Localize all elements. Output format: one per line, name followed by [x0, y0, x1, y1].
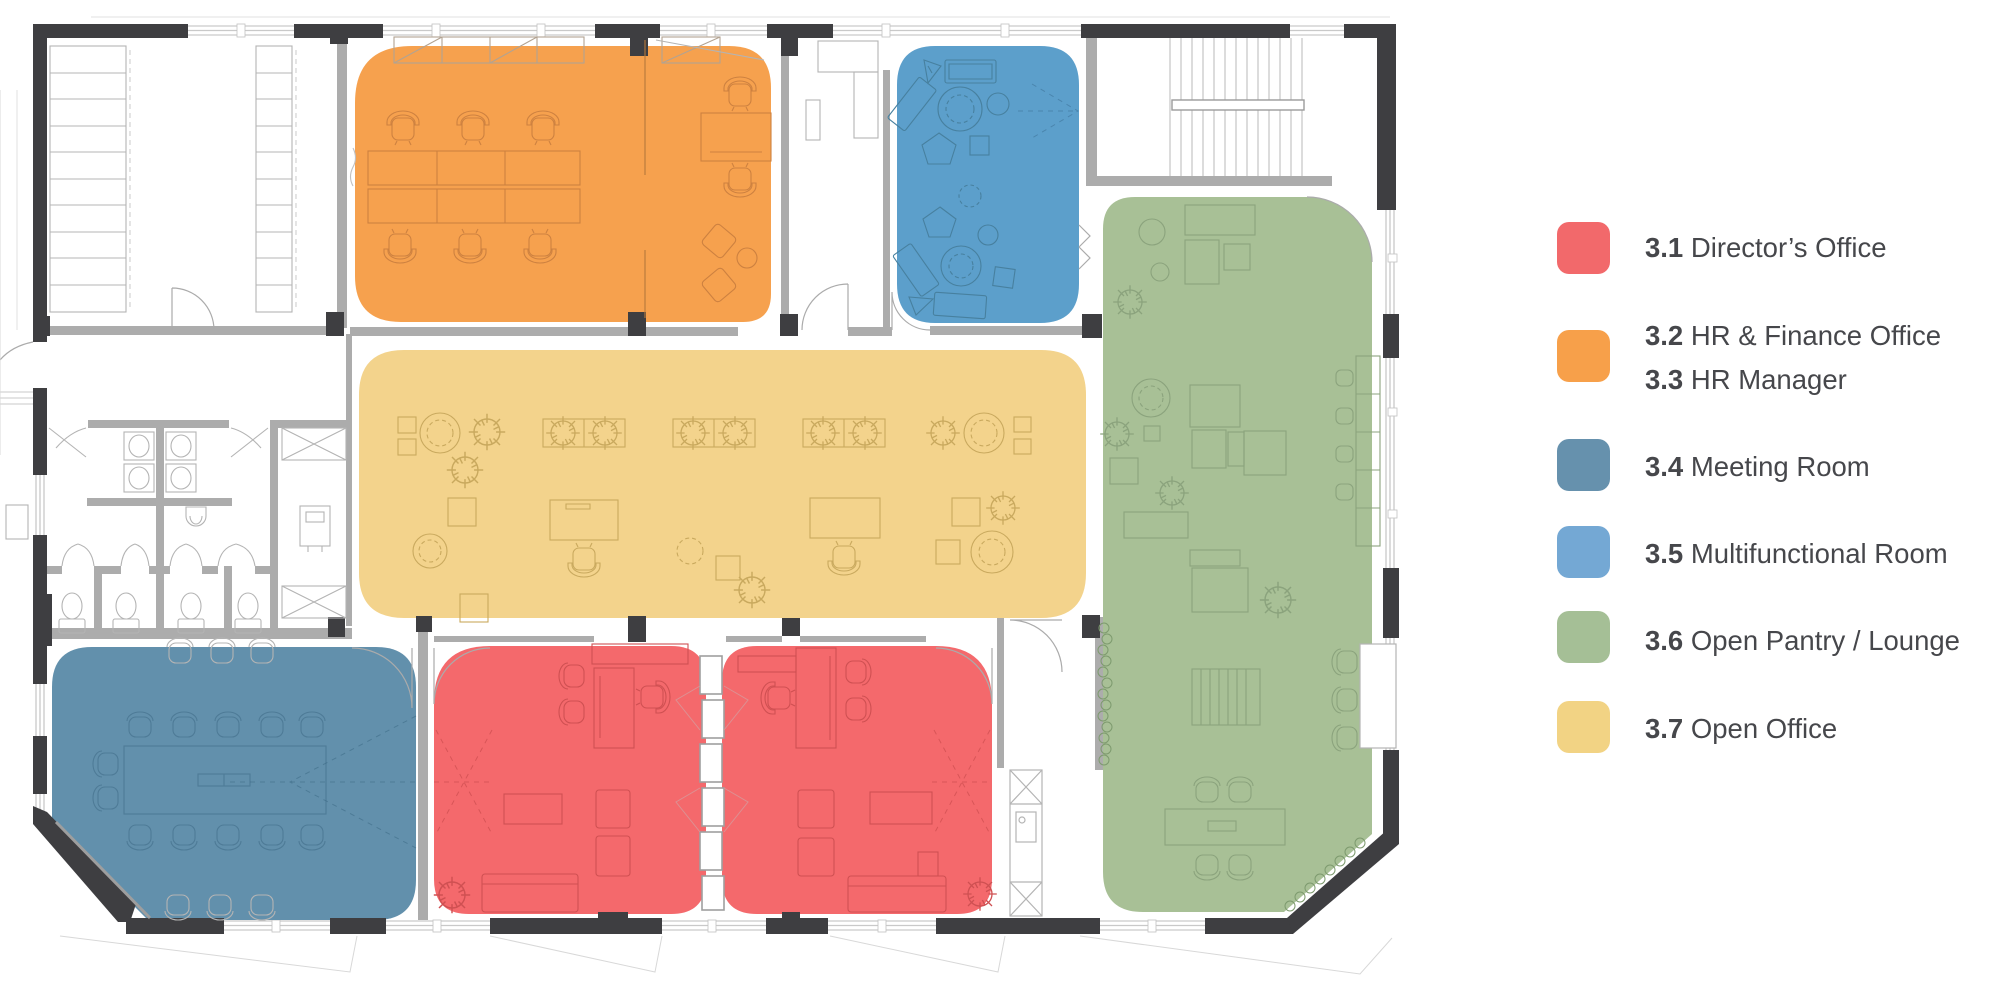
- svg-text:3.3 HR Manager: 3.3 HR Manager: [1645, 364, 1847, 395]
- svg-text:3.5 Multifunctional Room: 3.5 Multifunctional Room: [1645, 538, 1948, 569]
- svg-text:3.6 Open Pantry / Lounge: 3.6 Open Pantry / Lounge: [1645, 625, 1960, 656]
- svg-text:3.4 Meeting Room: 3.4 Meeting Room: [1645, 451, 1870, 482]
- svg-text:3.7 Open Office: 3.7 Open Office: [1645, 713, 1837, 744]
- svg-text:3.1 Director’s Office: 3.1 Director’s Office: [1645, 232, 1887, 263]
- svg-text:3.2 HR & Finance Office: 3.2 HR & Finance Office: [1645, 320, 1941, 351]
